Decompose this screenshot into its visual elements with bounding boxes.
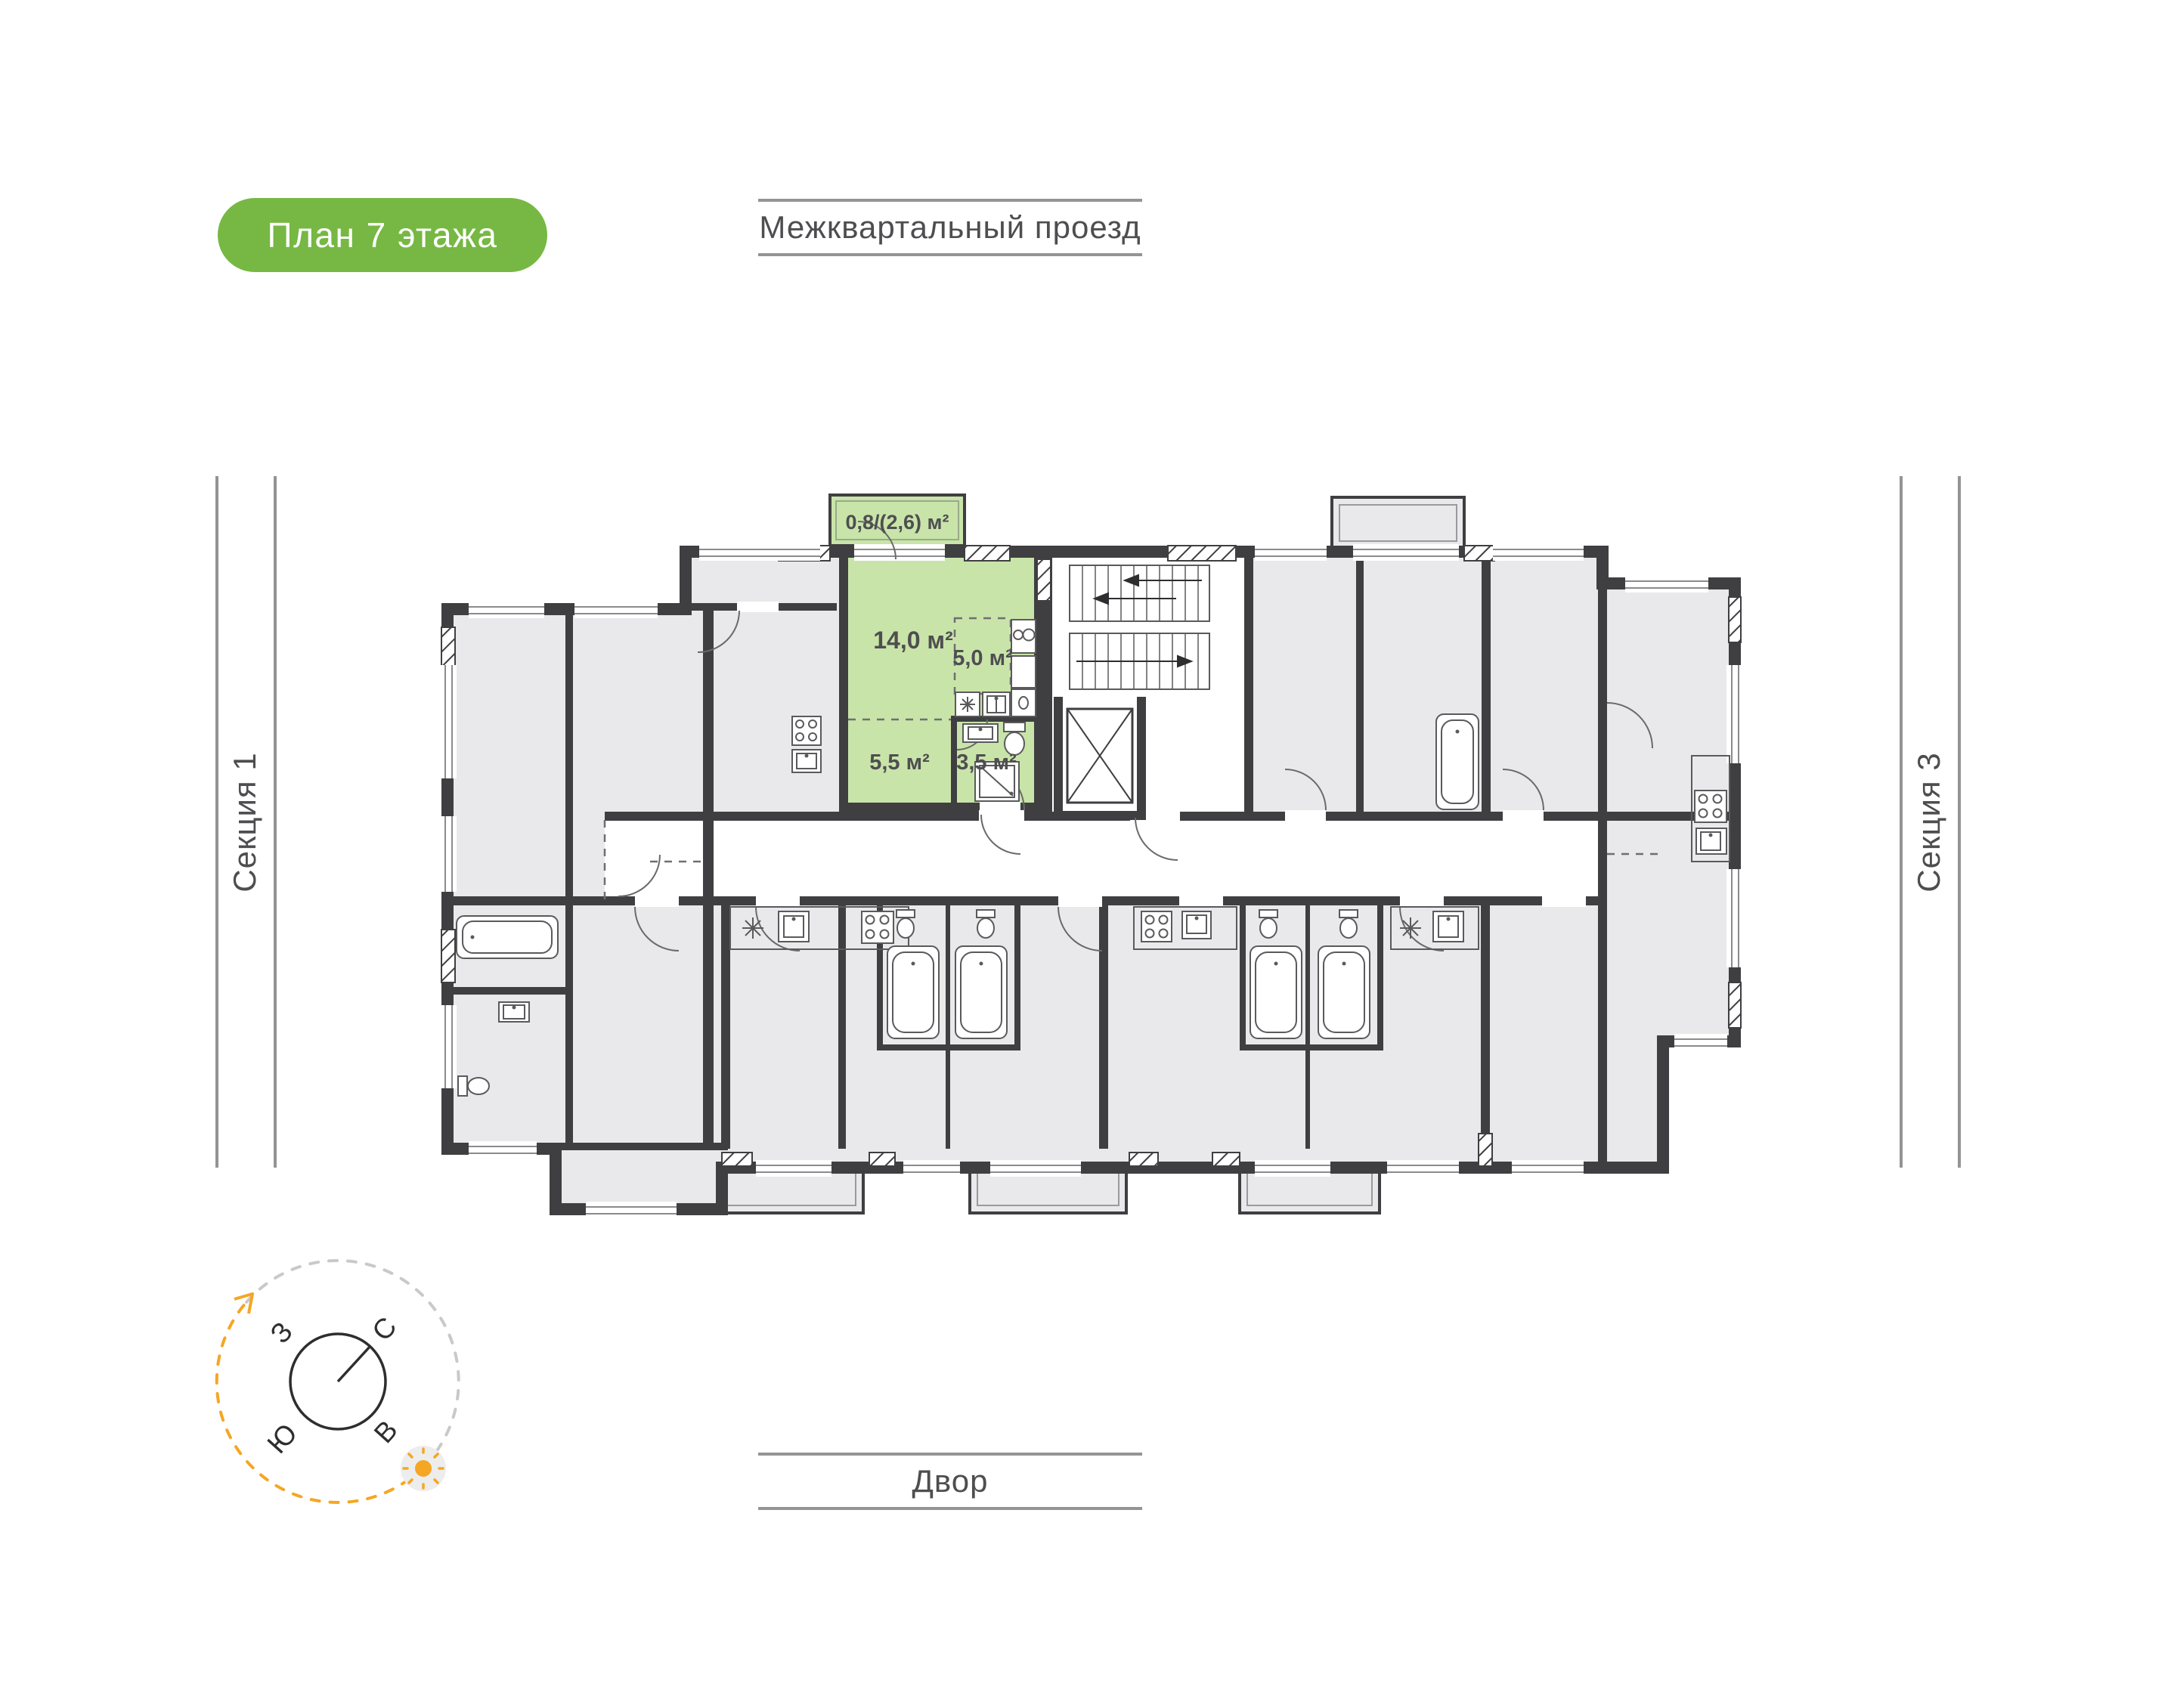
window [903, 1160, 960, 1177]
living-area-label: 14,0 м² [873, 627, 953, 654]
window [699, 544, 820, 561]
hall-area-label: 5,5 м² [869, 750, 930, 775]
compass-south: Ю [262, 1418, 303, 1459]
toilet-icon [1259, 910, 1277, 938]
window [469, 602, 544, 618]
window [586, 1202, 677, 1218]
kitchen-area-label: 5,0 м² [952, 646, 1013, 670]
window [854, 544, 945, 561]
window [756, 1160, 831, 1177]
bathtub-icon [457, 916, 558, 958]
window [440, 816, 457, 892]
window [1255, 544, 1327, 561]
window [1726, 869, 1743, 967]
balcony-area-label: 0,8/(2,6) м² [845, 511, 949, 534]
compass-west: З [265, 1316, 299, 1349]
window [1625, 576, 1708, 593]
window [1512, 1160, 1584, 1177]
bathtub-icon [1318, 946, 1370, 1038]
toilet-icon [1339, 910, 1358, 938]
window [1353, 544, 1459, 561]
window [440, 1005, 457, 1088]
bathtub-icon [1250, 946, 1302, 1038]
toilet-icon [977, 910, 995, 938]
sink-icon [499, 1002, 529, 1022]
bath-area-label: 3,5 м² [956, 750, 1017, 775]
floor-plan-page: План 7 этажа Межквартальный проезд Двор … [0, 0, 2177, 1708]
compass: З С Ю В [217, 1261, 459, 1502]
bathtub-icon [1436, 714, 1479, 809]
bathtub-icon [887, 946, 939, 1038]
window [1255, 1160, 1330, 1177]
elevator [1054, 697, 1146, 820]
bathtub-icon [955, 946, 1007, 1038]
compass-east: В [368, 1414, 404, 1449]
floor-plan-drawing: 0,8/(2,6) м² 14,0 м² 5,0 м² 5,5 м² 3,5 м… [0, 0, 2177, 1708]
window [1674, 1034, 1727, 1050]
window [990, 1160, 1081, 1177]
toilet-icon [897, 910, 915, 938]
sun-icon [401, 1446, 446, 1491]
compass-north: С [366, 1311, 402, 1347]
sink-icon [792, 750, 821, 772]
window [574, 602, 658, 618]
stove-icon [792, 716, 821, 745]
window [1493, 544, 1584, 561]
balcony-top-right [1332, 497, 1464, 547]
window [469, 1141, 537, 1158]
window [440, 665, 457, 778]
toilet-icon [458, 1076, 489, 1096]
window [1387, 1160, 1459, 1177]
window [1726, 665, 1743, 763]
